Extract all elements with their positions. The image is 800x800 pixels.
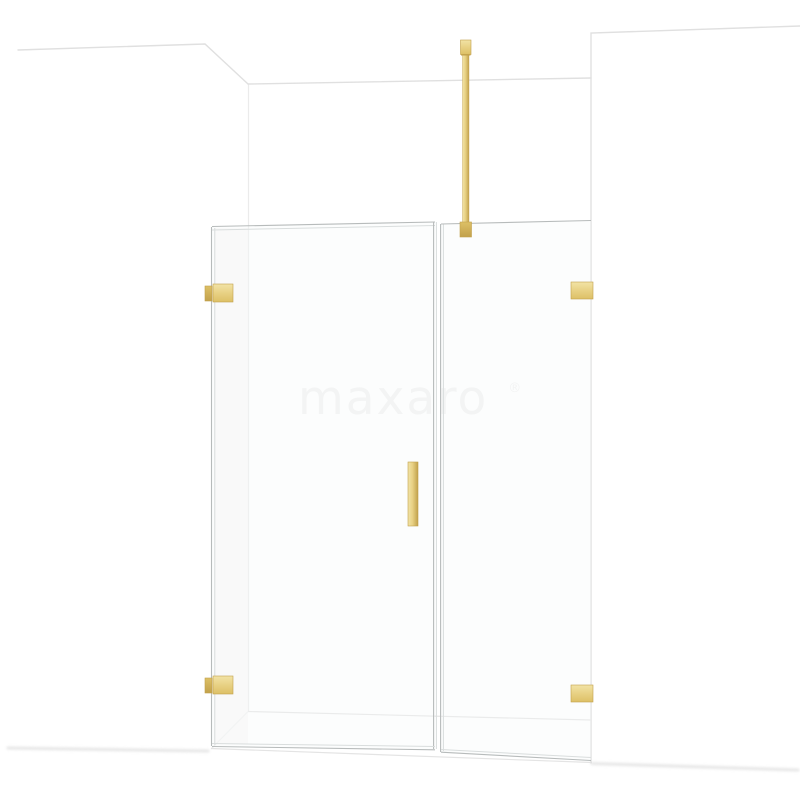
product-image[interactable]: maxaro ® — [0, 0, 800, 800]
bracket-plate — [571, 282, 593, 299]
hinge-plate — [213, 284, 233, 302]
side-panel-glass-face — [441, 221, 591, 761]
door-handle — [408, 462, 418, 526]
bar-glass-clamp — [460, 222, 472, 237]
door-hinge-bottom — [205, 676, 233, 694]
hinge-wall-clamp — [205, 678, 212, 693]
bracket-plate — [571, 685, 593, 702]
door-glass — [212, 222, 437, 750]
door-left-reveal-shade — [214, 228, 248, 744]
bar-shaft — [463, 55, 470, 223]
hinge-plate — [213, 676, 233, 694]
side-panel-glass — [441, 221, 591, 761]
handle-bar — [408, 462, 418, 526]
bar-ceiling-cap — [461, 40, 472, 55]
door-hinge-top — [205, 284, 233, 302]
hinge-wall-clamp — [205, 286, 212, 301]
panel-wall-bracket-bottom — [571, 685, 593, 702]
panel-wall-bracket-top — [571, 282, 593, 299]
